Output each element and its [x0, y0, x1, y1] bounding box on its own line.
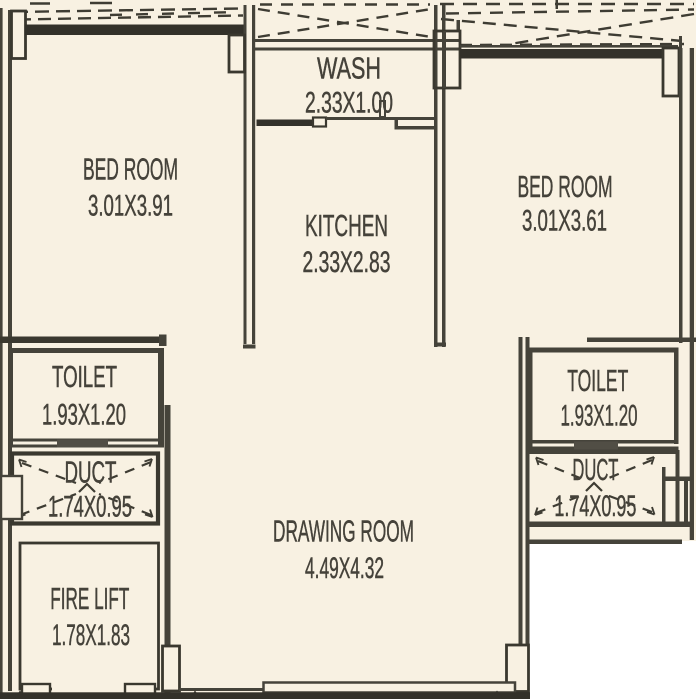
svg-text:BED ROOM: BED ROOM: [518, 169, 613, 204]
svg-text:DRAWING ROOM: DRAWING ROOM: [273, 514, 414, 549]
svg-text:DUCT: DUCT: [572, 452, 618, 487]
svg-text:3.01X3.91: 3.01X3.91: [88, 189, 173, 222]
svg-text:DUCT: DUCT: [65, 455, 117, 490]
svg-text:3.01X3.61: 3.01X3.61: [522, 204, 607, 237]
svg-text:FIRE LIFT: FIRE LIFT: [50, 581, 129, 616]
svg-text:TOILET: TOILET: [52, 359, 117, 394]
svg-text:1.93X1.20: 1.93X1.20: [42, 398, 126, 431]
svg-text:1.74X0.95: 1.74X0.95: [48, 490, 132, 523]
svg-text:1.93X1.20: 1.93X1.20: [561, 399, 638, 432]
svg-text:1.74X0.95: 1.74X0.95: [554, 490, 636, 523]
svg-text:TOILET: TOILET: [567, 363, 628, 398]
svg-text:4.49X4.32: 4.49X4.32: [305, 552, 384, 585]
svg-text:1.78X1.83: 1.78X1.83: [52, 619, 130, 652]
svg-text:BED ROOM: BED ROOM: [83, 152, 178, 187]
svg-text:KITCHEN: KITCHEN: [305, 208, 388, 243]
svg-text:WASH: WASH: [317, 51, 381, 86]
svg-text:2.33X2.83: 2.33X2.83: [303, 246, 391, 279]
